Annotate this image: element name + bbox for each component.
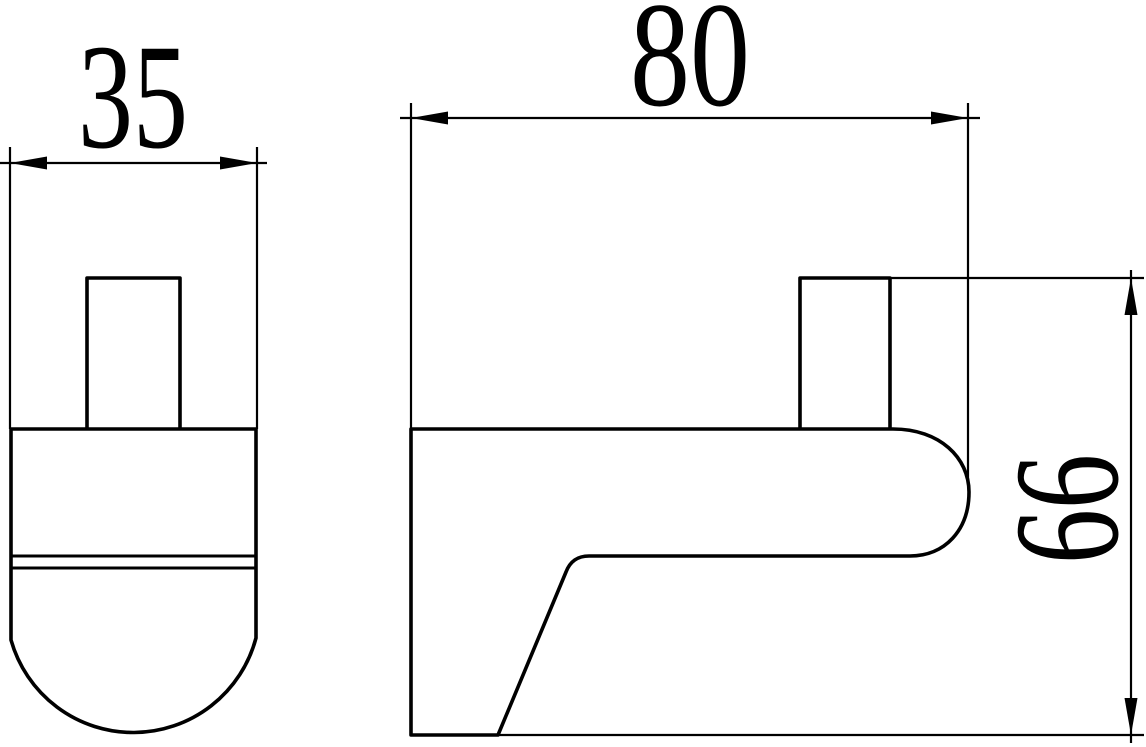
dimension-value-80: 80 <box>630 0 750 138</box>
dimension-value-35: 35 <box>78 14 188 180</box>
drawing-page: 35 80 66 <box>0 0 1146 747</box>
dimension-value-66: 66 <box>984 454 1146 564</box>
technical-drawing: 35 80 66 <box>0 0 1146 747</box>
